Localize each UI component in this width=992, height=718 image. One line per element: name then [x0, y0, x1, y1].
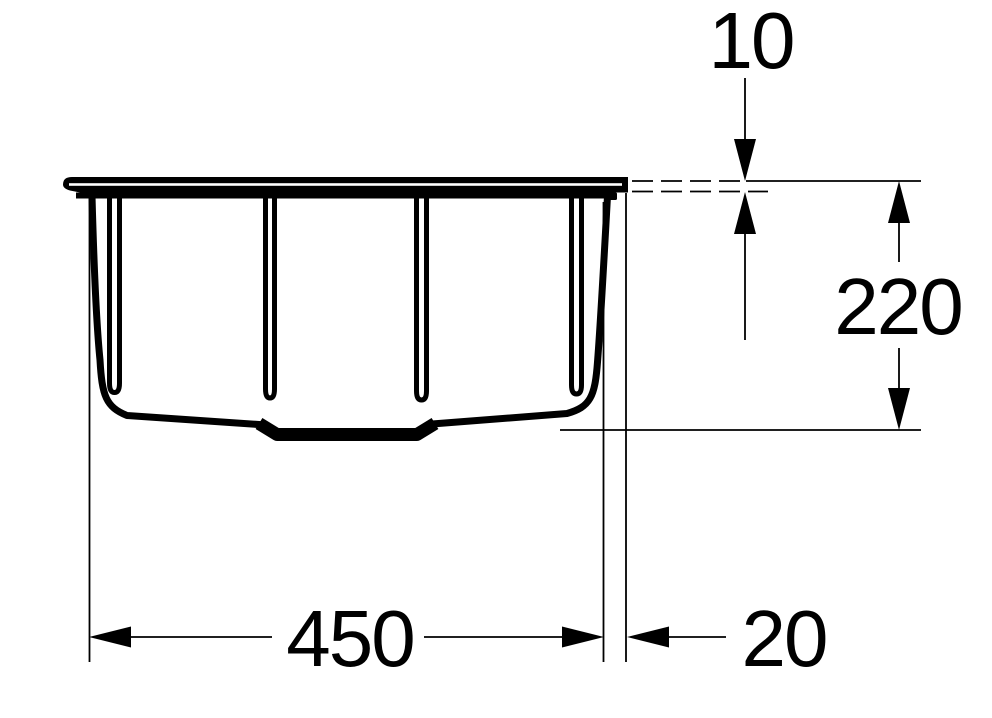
dimension-bowl-depth: 220 — [560, 181, 962, 430]
technical-drawing-canvas: 10 220 450 20 — [0, 0, 992, 718]
dim220-arrow-down-icon — [888, 388, 910, 430]
dim220-arrow-up-icon — [888, 181, 910, 223]
bowl-corner-line-3 — [417, 197, 427, 400]
dim20-arrow-left-icon — [627, 627, 669, 648]
dimension-rim-thickness: 10 — [632, 0, 793, 340]
bowl-corner-line-4 — [572, 196, 582, 394]
sink-dimension-drawing: 10 220 450 20 — [0, 0, 992, 718]
dim-label-rim-thickness: 10 — [709, 0, 794, 85]
sink-body — [63, 177, 628, 435]
bowl-corner-line-2 — [266, 196, 275, 398]
dim450-arrow-left-icon — [89, 627, 131, 648]
rim-lower-lip — [76, 193, 610, 199]
dim-label-bowl-depth: 220 — [834, 262, 961, 351]
dim-label-bowl-width: 450 — [286, 594, 413, 683]
dim10-arrow-up-icon — [734, 192, 756, 234]
rim-highlight-line — [69, 183, 622, 186]
dim-label-rim-overhang: 20 — [742, 594, 827, 683]
bowl-corner-line-1 — [110, 196, 120, 393]
bowl-drain-recess — [259, 424, 435, 435]
dim10-arrow-down-icon — [734, 139, 756, 181]
dimension-rim-overhang: 20 — [626, 193, 826, 683]
dim450-arrow-right-icon — [562, 627, 604, 648]
